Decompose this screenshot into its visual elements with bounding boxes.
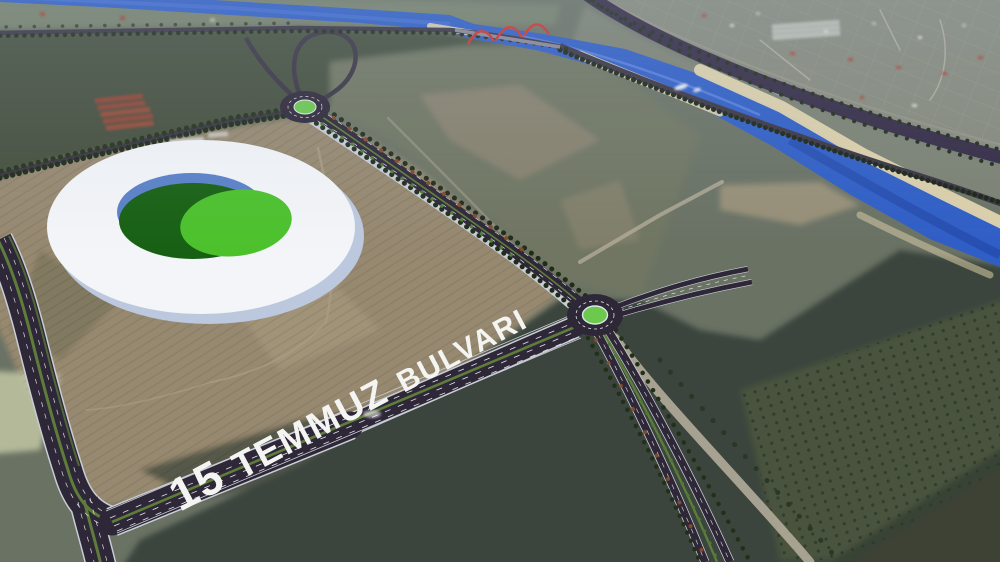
aerial-render-image: 15TEMMUZBULVARI <box>0 0 1000 562</box>
atmosphere-haze <box>0 0 1000 562</box>
scene-svg: 15TEMMUZBULVARI <box>0 0 1000 562</box>
